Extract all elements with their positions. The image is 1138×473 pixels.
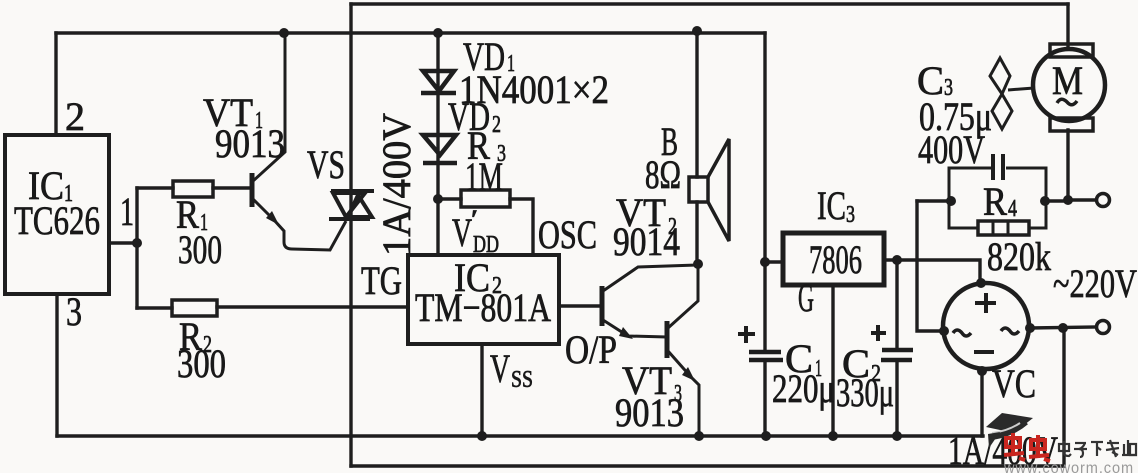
svg-text:SS: SS [511, 367, 533, 393]
svg-text:3: 3 [846, 202, 855, 228]
svg-text:TC626: TC626 [14, 198, 100, 243]
svg-text:′: ′ [471, 205, 478, 234]
svg-text:1M: 1M [465, 154, 503, 199]
svg-text:300: 300 [177, 341, 226, 386]
svg-text:1A/400V: 1A/400V [374, 113, 419, 256]
svg-text:TG: TG [361, 258, 402, 303]
svg-text:IC: IC [817, 183, 846, 228]
svg-text:9014: 9014 [613, 219, 680, 264]
svg-text:R: R [983, 179, 1007, 224]
svg-text:2: 2 [65, 94, 85, 139]
svg-text:O/P: O/P [565, 327, 617, 372]
svg-text:820k: 820k [987, 234, 1051, 279]
svg-text:220μ: 220μ [772, 366, 835, 411]
svg-text:G: G [798, 275, 814, 320]
svg-text:300: 300 [178, 227, 222, 272]
svg-text:8Ω: 8Ω [645, 152, 681, 197]
svg-text:7806: 7806 [809, 237, 862, 282]
svg-text:1: 1 [120, 189, 134, 234]
svg-text:9013: 9013 [615, 390, 684, 435]
svg-text:2: 2 [492, 112, 501, 138]
svg-text:V: V [490, 346, 510, 391]
svg-text:~220V: ~220V [1053, 261, 1137, 306]
svg-text:9013: 9013 [215, 121, 285, 166]
svg-text:M: M [1052, 58, 1083, 103]
svg-text:TM−801A: TM−801A [415, 285, 551, 330]
svg-text:www.coworm.com: www.coworm.com [1003, 460, 1134, 473]
svg-text:VS: VS [307, 142, 345, 187]
svg-text:400V: 400V [918, 127, 985, 172]
svg-text:3: 3 [66, 289, 82, 334]
svg-text:V: V [452, 210, 472, 255]
svg-text:VC: VC [992, 361, 1036, 406]
svg-text:OSC: OSC [538, 212, 597, 257]
svg-text:4: 4 [1008, 196, 1017, 222]
svg-text:330μ: 330μ [836, 370, 894, 415]
